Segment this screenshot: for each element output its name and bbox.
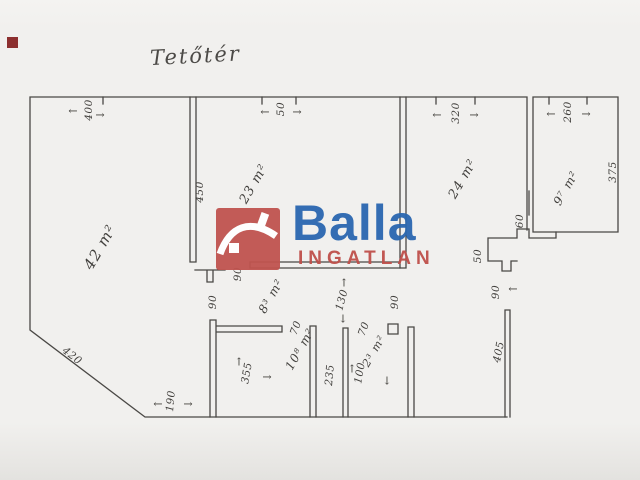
- arrow-up-icon: ↑: [339, 277, 348, 290]
- arrow-right-icon: →: [183, 398, 192, 411]
- dim-60: 60: [514, 214, 526, 228]
- logo-house-box: [216, 208, 280, 270]
- dim-90-right-door: 90: [490, 285, 502, 299]
- dim-450: 450: [194, 181, 206, 203]
- right-lower-wall: [505, 310, 510, 417]
- right-step-wall: [488, 229, 556, 271]
- arrow-left-icon: ←: [546, 108, 555, 121]
- house-roof-icon: [216, 208, 280, 270]
- floorplan-canvas: Tetőtér 42 m² 23 m: [0, 0, 640, 480]
- dim-400: 400: [83, 99, 95, 121]
- dim-375: 375: [607, 161, 619, 183]
- arrow-right-icon: →: [469, 109, 478, 122]
- dim-50-step: 50: [472, 249, 484, 263]
- arrow-right-icon: →: [95, 109, 104, 122]
- arrow-left-icon: ←: [68, 105, 77, 118]
- arrow-left-icon: ←: [508, 283, 517, 296]
- dim-50-top: 50: [275, 102, 287, 116]
- middle-room-left-wall: [190, 97, 196, 262]
- dim-90-hall-left: 90: [207, 295, 219, 309]
- arrow-right-icon: →: [292, 106, 301, 119]
- dim-235: 235: [323, 364, 337, 387]
- arrow-down-icon: ↓: [338, 313, 347, 326]
- arrow-right-icon: →: [581, 108, 590, 121]
- arrow-down-icon: ↓: [382, 375, 391, 388]
- logo-subtitle-text: INGATLAN: [298, 248, 444, 270]
- watermark-logo: Balla INGATLAN: [216, 206, 442, 274]
- arrow-left-icon: ←: [432, 109, 441, 122]
- dim-190: 190: [164, 390, 178, 413]
- arrow-left-icon: ←: [153, 398, 162, 411]
- arrow-left-icon: ←: [260, 106, 269, 119]
- dim-320: 320: [450, 102, 462, 124]
- arrow-right-icon: →: [262, 371, 271, 384]
- dim-90-hall-right: 90: [389, 295, 401, 309]
- arrow-up-icon: ↑: [347, 363, 356, 376]
- opening-ticks: [103, 97, 587, 104]
- logo-brand-text: Balla: [292, 194, 442, 252]
- dim-260: 260: [562, 101, 574, 123]
- arrow-up-icon: ↑: [234, 356, 243, 369]
